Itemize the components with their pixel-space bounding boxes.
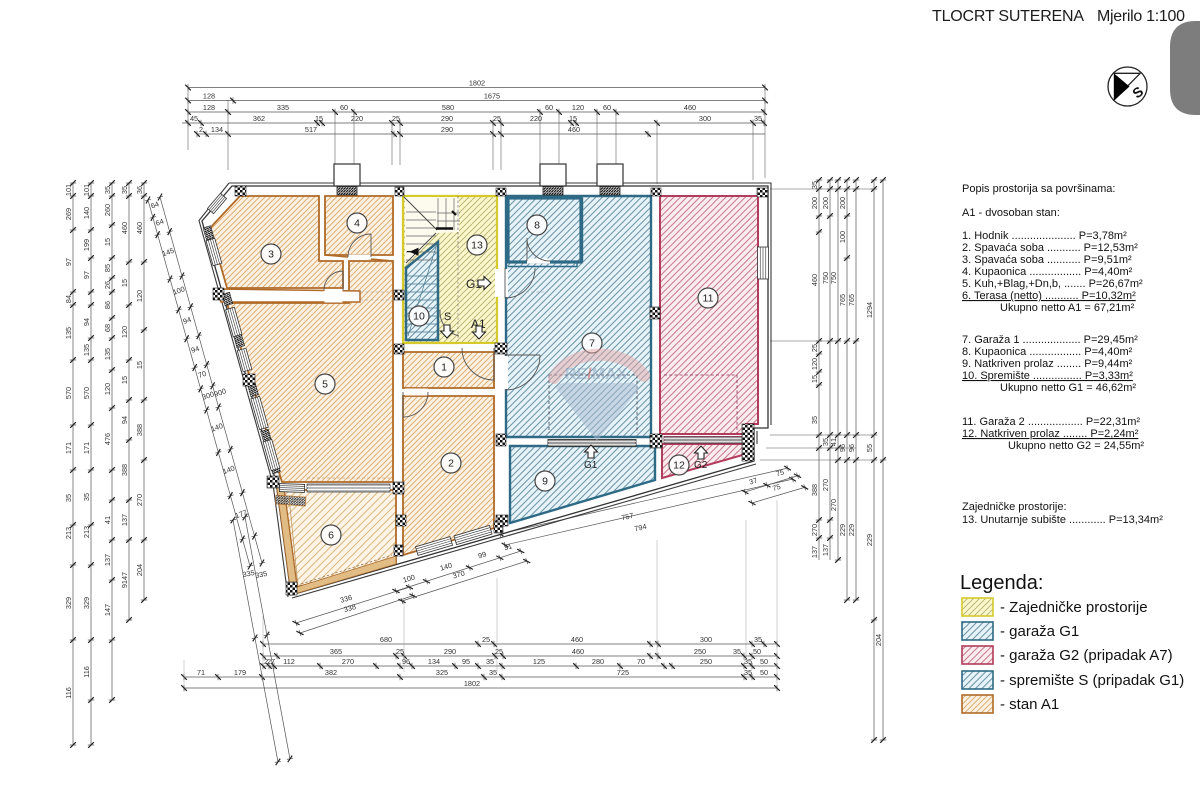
svg-text:125: 125: [533, 657, 545, 666]
svg-text:765: 765: [838, 294, 847, 306]
svg-text:725: 725: [617, 668, 629, 677]
svg-text:120: 120: [572, 103, 584, 112]
svg-text:2. Spavaća soba ........... P=: 2. Spavaća soba ........... P=12,53m²: [962, 242, 1138, 254]
svg-text:140: 140: [210, 421, 224, 434]
svg-text:120: 120: [103, 383, 112, 395]
svg-text:177: 177: [234, 508, 248, 521]
svg-text:9: 9: [542, 476, 548, 488]
svg-text:137: 137: [821, 544, 830, 556]
svg-text:68: 68: [103, 324, 112, 332]
svg-text:35: 35: [744, 668, 752, 677]
svg-text:35: 35: [120, 186, 129, 194]
svg-text:- Zajedničke prostorije: - Zajedničke prostorije: [1000, 599, 1148, 616]
svg-text:116: 116: [64, 687, 73, 699]
svg-text:270: 270: [829, 499, 838, 511]
svg-text:4: 4: [354, 218, 360, 230]
svg-text:11: 11: [703, 293, 714, 305]
svg-text:64: 64: [154, 217, 165, 228]
svg-text:95: 95: [462, 657, 470, 666]
svg-text:134: 134: [428, 657, 440, 666]
svg-text:476: 476: [103, 433, 112, 445]
svg-text:171: 171: [82, 442, 91, 454]
svg-text:1802: 1802: [464, 679, 480, 688]
svg-text:370: 370: [452, 568, 466, 580]
svg-text:128: 128: [203, 103, 215, 112]
svg-text:229: 229: [847, 524, 856, 536]
svg-text:A1 - dvosoban stan:: A1 - dvosoban stan:: [962, 207, 1060, 219]
svg-text:460: 460: [568, 125, 580, 134]
svg-text:200: 200: [821, 197, 830, 209]
svg-text:10. Spremište ................: 10. Spremište ................ P=3,33m²: [962, 370, 1133, 382]
svg-text:250: 250: [700, 657, 712, 666]
svg-text:RE/MAX: RE/MAX: [565, 366, 628, 383]
svg-text:112: 112: [283, 657, 295, 666]
svg-text:765: 765: [847, 294, 856, 306]
svg-text:204: 204: [874, 634, 883, 646]
svg-text:25: 25: [810, 344, 819, 352]
svg-text:6. Terasa (netto) ...........: 6. Terasa (netto) ........... P=10,32m²: [962, 290, 1136, 302]
svg-text:35: 35: [733, 647, 741, 656]
svg-text:45: 45: [190, 114, 198, 123]
svg-text:325: 325: [436, 668, 448, 677]
svg-text:70: 70: [637, 657, 645, 666]
svg-text:TLOCRT SUTERENA: TLOCRT SUTERENA: [932, 8, 1084, 25]
svg-text:388: 388: [810, 484, 819, 496]
svg-text:460: 460: [571, 635, 583, 644]
svg-text:84: 84: [64, 295, 73, 303]
svg-text:2: 2: [448, 458, 454, 470]
svg-text:145: 145: [161, 246, 175, 259]
svg-text:- stan A1: - stan A1: [1000, 696, 1059, 713]
svg-text:85: 85: [103, 264, 112, 272]
svg-text:15: 15: [315, 114, 323, 123]
svg-text:15: 15: [135, 361, 144, 369]
svg-text:96: 96: [402, 657, 410, 666]
svg-text:100: 100: [838, 231, 847, 243]
svg-text:1675: 1675: [484, 92, 500, 101]
svg-text:97: 97: [82, 271, 91, 279]
svg-text:10: 10: [413, 311, 425, 323]
svg-text:94: 94: [82, 318, 91, 326]
svg-text:460: 460: [135, 222, 144, 234]
svg-text:50: 50: [760, 657, 768, 666]
svg-text:120: 120: [120, 326, 129, 338]
svg-text:5. Kuh,+Blag,+Dn,b, ....... P=: 5. Kuh,+Blag,+Dn,b, ....... P=26,67m²: [962, 278, 1143, 290]
svg-text:116: 116: [82, 666, 91, 678]
svg-text:757: 757: [620, 511, 634, 523]
svg-text:37: 37: [748, 476, 758, 487]
svg-text:15: 15: [103, 238, 112, 246]
svg-text:100: 100: [402, 572, 416, 584]
svg-text:15: 15: [120, 279, 129, 287]
svg-text:Ukupno netto G1 = 46,62m²: Ukupno netto G1 = 46,62m²: [1000, 382, 1136, 394]
svg-text:900: 900: [213, 386, 227, 399]
svg-text:26: 26: [103, 281, 112, 289]
svg-text:270: 270: [821, 479, 830, 491]
svg-text:270: 270: [342, 657, 354, 666]
svg-text:60: 60: [340, 103, 348, 112]
svg-text:388: 388: [135, 424, 144, 436]
svg-text:329: 329: [82, 597, 91, 609]
svg-text:517: 517: [305, 125, 317, 134]
svg-text:64: 64: [150, 199, 161, 210]
svg-text:94: 94: [182, 315, 193, 326]
svg-text:260: 260: [103, 204, 112, 216]
svg-text:460: 460: [810, 274, 819, 286]
svg-text:G2: G2: [694, 460, 708, 471]
svg-text:750: 750: [829, 272, 838, 284]
svg-text:140: 140: [221, 463, 235, 476]
svg-text:35: 35: [810, 416, 819, 424]
svg-text:140: 140: [439, 561, 453, 573]
svg-text:25: 25: [396, 647, 404, 656]
svg-text:270: 270: [810, 524, 819, 536]
svg-text:35: 35: [754, 635, 762, 644]
svg-text:2: 2: [199, 125, 203, 134]
svg-text:101: 101: [82, 184, 91, 196]
svg-text:25: 25: [392, 114, 400, 123]
svg-text:290: 290: [441, 114, 453, 123]
svg-text:41: 41: [103, 516, 112, 524]
svg-text:35: 35: [82, 493, 91, 501]
svg-text:135: 135: [82, 344, 91, 356]
svg-text:9147: 9147: [120, 572, 129, 588]
svg-text:135: 135: [64, 327, 73, 339]
svg-text:41: 41: [829, 438, 838, 446]
svg-text:97: 97: [64, 258, 73, 266]
svg-text:128: 128: [203, 92, 215, 101]
svg-text:35: 35: [103, 186, 112, 194]
svg-text:12: 12: [673, 460, 685, 472]
svg-text:220: 220: [351, 114, 363, 123]
svg-text:- garaža G1: - garaža G1: [1000, 623, 1079, 640]
svg-text:8: 8: [534, 220, 540, 232]
svg-text:60: 60: [603, 103, 611, 112]
svg-text:3. Spavaća soba ........... P=: 3. Spavaća soba ........... P=9,51m²: [962, 254, 1132, 266]
svg-text:55: 55: [865, 444, 874, 452]
svg-text:99: 99: [477, 550, 487, 561]
svg-text:382: 382: [325, 668, 337, 677]
svg-text:179: 179: [234, 668, 246, 677]
svg-text:12. Natkriven prolaz ........: 12. Natkriven prolaz ........ P=2,24m²: [962, 428, 1139, 440]
svg-text:229: 229: [865, 534, 874, 546]
svg-text:335: 335: [242, 568, 256, 579]
svg-text:50: 50: [753, 647, 761, 656]
svg-text:35: 35: [486, 657, 494, 666]
svg-text:460: 460: [572, 647, 584, 656]
svg-text:200: 200: [810, 197, 819, 209]
svg-text:5: 5: [322, 379, 328, 391]
svg-text:1. Hodnik ....................: 1. Hodnik ..................... P=3,78m²: [962, 230, 1127, 242]
svg-text:147: 147: [103, 604, 112, 616]
svg-text:570: 570: [82, 387, 91, 399]
svg-text:365: 365: [330, 647, 342, 656]
svg-text:213: 213: [82, 526, 91, 538]
svg-text:Mjerilo 1:100: Mjerilo 1:100: [1097, 8, 1185, 25]
svg-text:300: 300: [699, 114, 711, 123]
svg-text:Legenda:: Legenda:: [960, 572, 1043, 594]
svg-text:25: 25: [495, 647, 503, 656]
svg-text:35: 35: [744, 657, 752, 666]
svg-text:Ukupno netto G2 = 24,55m²: Ukupno netto G2 = 24,55m²: [1008, 440, 1144, 452]
svg-text:7: 7: [589, 338, 595, 350]
svg-text:G1: G1: [584, 460, 598, 471]
svg-text:35: 35: [810, 181, 819, 189]
svg-text:6: 6: [328, 530, 334, 542]
svg-text:- spremište S (pripadak G1): - spremište S (pripadak G1): [1000, 672, 1184, 689]
svg-text:94: 94: [190, 344, 201, 355]
svg-text:70: 70: [197, 369, 208, 380]
svg-text:300: 300: [700, 635, 712, 644]
svg-text:50: 50: [760, 668, 768, 677]
svg-text:269: 269: [64, 208, 73, 220]
svg-text:3: 3: [268, 249, 274, 261]
svg-text:137: 137: [120, 514, 129, 526]
svg-text:335: 335: [254, 569, 268, 580]
svg-text:460: 460: [120, 222, 129, 234]
svg-text:200: 200: [838, 197, 847, 209]
svg-text:134: 134: [211, 125, 223, 134]
svg-text:137: 137: [103, 554, 112, 566]
svg-text:135: 135: [103, 348, 112, 360]
svg-text:1802: 1802: [469, 79, 485, 88]
svg-text:15: 15: [569, 114, 577, 123]
svg-text:35: 35: [754, 114, 762, 123]
svg-text:S: S: [444, 311, 451, 323]
svg-text:680: 680: [380, 635, 392, 644]
svg-text:7. Garaža 1 ..................: 7. Garaža 1 ................... P=29,45m…: [962, 334, 1138, 346]
svg-text:199: 199: [82, 239, 91, 251]
svg-text:1294: 1294: [865, 302, 874, 318]
svg-text:290: 290: [444, 647, 456, 656]
svg-text:338: 338: [343, 602, 357, 614]
svg-text:35: 35: [489, 668, 497, 677]
svg-text:- garaža G2 (pripadak A7): - garaža G2 (pripadak A7): [1000, 647, 1173, 664]
svg-text:9. Natkriven prolaz ........ P: 9. Natkriven prolaz ........ P=9,44m²: [962, 358, 1133, 370]
svg-text:1: 1: [441, 362, 447, 374]
svg-text:36: 36: [135, 186, 144, 194]
svg-text:171: 171: [64, 442, 73, 454]
svg-text:4. Kupaonica .................: 4. Kupaonica ................. P=4,40m²: [962, 266, 1133, 278]
svg-text:13. Unutarnje subište ........: 13. Unutarnje subište ............ P=13,…: [962, 514, 1163, 526]
svg-text:270: 270: [135, 494, 144, 506]
svg-text:71: 71: [197, 668, 205, 677]
svg-text:460: 460: [684, 103, 696, 112]
svg-text:75: 75: [771, 482, 781, 493]
svg-text:137: 137: [810, 546, 819, 558]
svg-text:100: 100: [172, 284, 186, 297]
svg-text:580: 580: [442, 103, 454, 112]
svg-text:Popis prostorija sa površinama: Popis prostorija sa površinama:: [962, 183, 1115, 195]
svg-text:570: 570: [64, 387, 73, 399]
svg-text:94: 94: [120, 416, 129, 424]
svg-text:362: 362: [253, 114, 265, 123]
svg-text:213: 213: [64, 527, 73, 539]
svg-text:Ukupno netto A1 = 67,21m²: Ukupno netto A1 = 67,21m²: [1000, 302, 1135, 314]
svg-text:101: 101: [64, 184, 73, 196]
svg-text:15: 15: [810, 375, 819, 383]
svg-text:25: 25: [493, 114, 501, 123]
svg-text:S: S: [1129, 83, 1146, 101]
svg-text:8. Kupaonica .................: 8. Kupaonica ................. P=4,40m²: [962, 346, 1133, 358]
svg-text:794: 794: [633, 522, 647, 534]
svg-text:204: 204: [135, 564, 144, 576]
svg-text:388: 388: [120, 464, 129, 476]
svg-text:Zajedničke prostorije:: Zajedničke prostorije:: [962, 501, 1067, 513]
svg-text:290: 290: [441, 125, 453, 134]
svg-text:15: 15: [120, 376, 129, 384]
svg-text:13: 13: [471, 240, 483, 252]
svg-text:120: 120: [135, 290, 144, 302]
svg-text:60: 60: [545, 103, 553, 112]
svg-text:86: 86: [103, 301, 112, 309]
svg-text:280: 280: [592, 657, 604, 666]
svg-text:335: 335: [277, 103, 289, 112]
svg-text:25: 25: [482, 635, 490, 644]
svg-text:229: 229: [838, 524, 847, 536]
svg-text:11. Garaža 2 .................: 11. Garaža 2 .................. P=22,31m…: [962, 416, 1140, 428]
svg-text:35: 35: [64, 494, 73, 502]
svg-text:140: 140: [82, 207, 91, 219]
svg-text:250: 250: [694, 647, 706, 656]
svg-text:329: 329: [64, 597, 73, 609]
svg-text:120: 120: [810, 358, 819, 370]
